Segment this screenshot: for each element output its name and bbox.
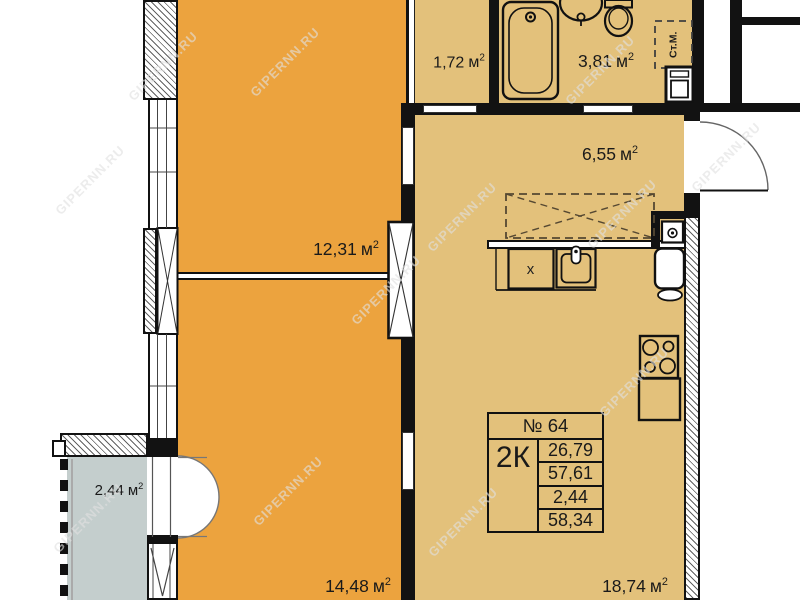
floor-plan: 1,72м2 3,81м2 6,55м2 12,31м2 2,44м2 14,4… xyxy=(0,0,800,600)
stove xyxy=(640,336,678,378)
apartment-type: 2К xyxy=(489,440,539,531)
washing-machine xyxy=(666,67,693,102)
area-total: 57,61 xyxy=(539,463,602,486)
apartment-number: № 64 xyxy=(489,414,602,440)
room-label-kitchen: 18,74м2 xyxy=(585,576,685,597)
fridge xyxy=(655,249,684,301)
area-living: 26,79 xyxy=(539,440,602,463)
hallway-closet xyxy=(506,194,654,238)
bathtub xyxy=(503,2,558,99)
room-label-living-1: 12,31м2 xyxy=(296,239,396,260)
storage-closet xyxy=(418,3,488,53)
area-overall: 58,34 xyxy=(539,510,602,531)
bathroom-sink xyxy=(560,0,602,26)
kitchen-table xyxy=(639,379,680,421)
toilet xyxy=(605,0,632,36)
counter-x-mark: x xyxy=(508,249,553,289)
washing-machine-label: Ст.М. xyxy=(655,21,692,68)
entrance-door-arc xyxy=(700,122,768,191)
balcony-window-opening-mark xyxy=(151,544,174,598)
apartment-info-table: № 64 2К 26,79 57,61 2,44 58,34 xyxy=(487,412,604,533)
area-balcony: 2,44 xyxy=(539,487,602,510)
room-label-hallway: 6,55м2 xyxy=(560,144,660,165)
left-wall-x-window xyxy=(158,228,178,334)
room-label-storage: 1,72м2 xyxy=(409,53,509,72)
fixtures-linework xyxy=(0,0,800,600)
room-label-living-2: 14,48м2 xyxy=(308,576,408,597)
hallway-fixture xyxy=(662,222,683,243)
room-label-balcony: 2,44м2 xyxy=(69,481,169,499)
room-label-bathroom: 3,81м2 xyxy=(556,51,656,72)
